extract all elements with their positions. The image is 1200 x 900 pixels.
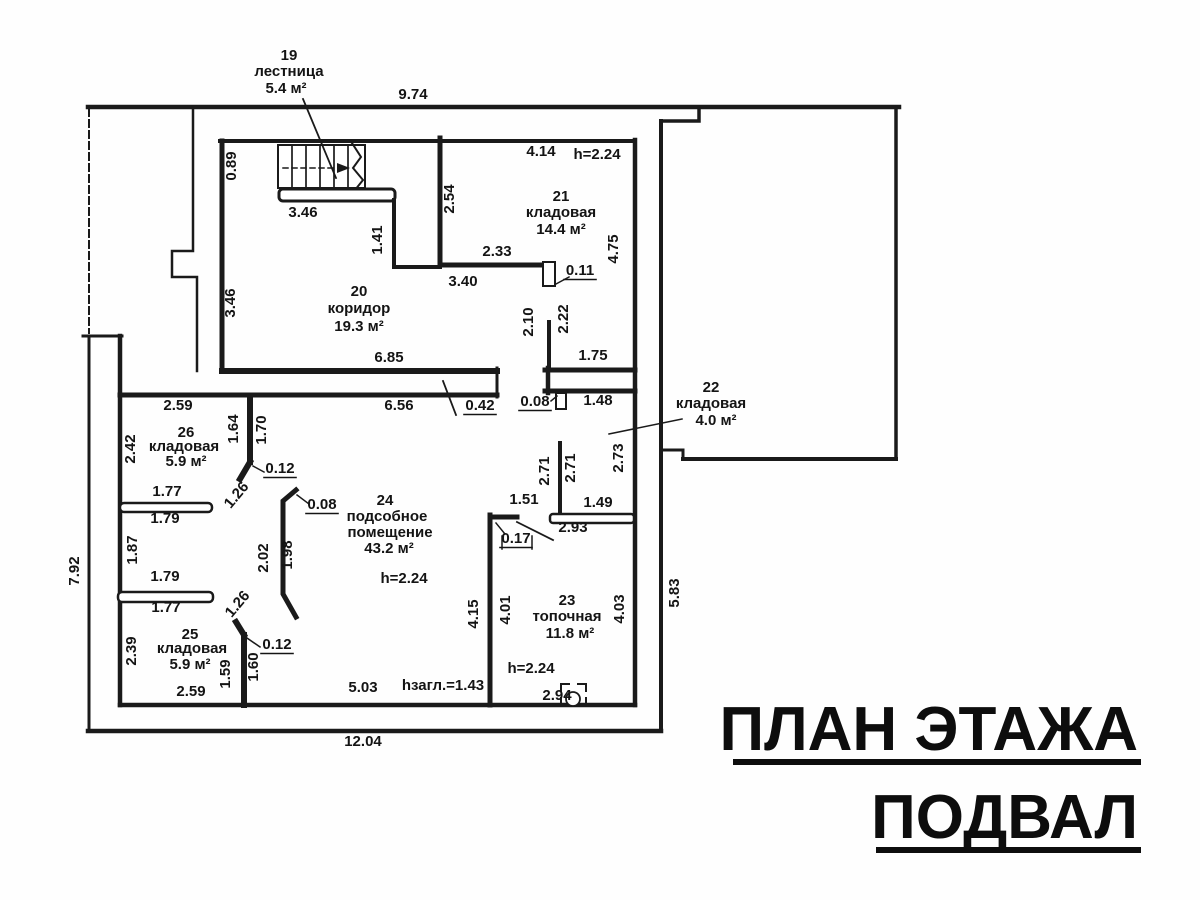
room-24-name-line1: подсобное bbox=[347, 508, 428, 525]
labels-layer: 19лестница5.4 м²20коридор19.3 м²21кладов… bbox=[66, 47, 746, 750]
dim-label: 1.98 bbox=[279, 540, 296, 569]
stairs-outline bbox=[278, 145, 365, 188]
title-block: ПЛАН ЭТАЖА ПОДВАЛ bbox=[720, 695, 1142, 852]
dim-label: 1.79 bbox=[150, 568, 179, 585]
leader-012-lower bbox=[247, 638, 260, 647]
dim-label: 6.56 bbox=[384, 397, 413, 414]
room-21-area: 14.4 м² bbox=[536, 221, 585, 238]
dim-label: 4.01 bbox=[497, 595, 514, 624]
room-26-area: 5.9 м² bbox=[165, 453, 206, 470]
dim-label: 5.03 bbox=[348, 679, 377, 696]
dim-label: 1.51 bbox=[509, 491, 538, 508]
room-24-area: 43.2 м² bbox=[364, 540, 413, 557]
dim-label: 0.08 bbox=[307, 496, 336, 513]
dim-label: 7.92 bbox=[66, 556, 83, 585]
dim-label: 2.59 bbox=[163, 397, 192, 414]
dim-label: 1.79 bbox=[150, 510, 179, 527]
dim-label: 1.75 bbox=[578, 347, 607, 364]
dim-label: 0.08 bbox=[520, 393, 549, 410]
wall-landing-niche bbox=[394, 200, 440, 267]
room-20-area: 19.3 м² bbox=[334, 318, 383, 335]
room-23-name: топочная bbox=[532, 608, 601, 625]
dim-label: 1.64 bbox=[225, 414, 242, 444]
dim-label: 2.10 bbox=[520, 307, 537, 336]
dim-label: 5.83 bbox=[666, 578, 683, 607]
dim-label: 2.73 bbox=[610, 443, 627, 472]
floor-plan-drawing: 19лестница5.4 м²20коридор19.3 м²21кладов… bbox=[0, 0, 1200, 900]
leader-012-upper bbox=[253, 466, 264, 472]
room-23-number: 23 bbox=[559, 592, 576, 609]
door-jamb-room22 bbox=[556, 393, 566, 409]
dim-label: 0.89 bbox=[223, 151, 240, 180]
dim-label: 4.75 bbox=[605, 234, 622, 263]
dim-label: 2.94 bbox=[542, 687, 572, 704]
dim-label: 2.22 bbox=[555, 304, 572, 333]
depth-annotation: hзагл.=1.43 bbox=[402, 677, 484, 694]
staircase bbox=[278, 99, 395, 201]
room-21-number: 21 bbox=[553, 188, 570, 205]
dim-label: 2.39 bbox=[123, 636, 140, 665]
dim-label: 1.26 bbox=[221, 478, 253, 511]
dim-label: 1.87 bbox=[124, 535, 141, 564]
dim-label: 1.77 bbox=[152, 483, 181, 500]
wall-room25-partition bbox=[236, 622, 244, 705]
dim-label: 2.42 bbox=[122, 434, 139, 463]
leader-042 bbox=[443, 381, 456, 415]
room-21-name: кладовая bbox=[526, 204, 596, 221]
dim-label: 1.26 bbox=[222, 587, 254, 620]
dim-label: 0.11 bbox=[566, 262, 594, 279]
dim-label: 2.71 bbox=[536, 456, 553, 485]
dim-label: 1.60 bbox=[245, 652, 262, 681]
dim-label: 6.85 bbox=[374, 349, 403, 366]
dim-label: 2.59 bbox=[176, 683, 205, 700]
dim-label: 1.41 bbox=[369, 225, 386, 254]
room-25-name: кладовая bbox=[157, 640, 227, 657]
wall-east-jog bbox=[661, 450, 683, 459]
room-23-area: 11.8 м² bbox=[546, 625, 595, 642]
dim-label: 9.74 bbox=[398, 86, 428, 103]
dim-label: 12.04 bbox=[344, 733, 382, 750]
dim-label: 1.59 bbox=[217, 659, 234, 688]
dim-label: 2.54 bbox=[441, 184, 458, 214]
room-20-number: 20 bbox=[351, 283, 368, 300]
dim-label: 1.70 bbox=[253, 415, 270, 444]
dim-label: 1.77 bbox=[151, 599, 180, 616]
dim-label: 3.46 bbox=[288, 204, 317, 221]
dim-label: 0.12 bbox=[265, 460, 294, 477]
dim-label: 0.42 bbox=[465, 397, 494, 414]
room-24-name-line2: помещение bbox=[347, 524, 432, 541]
dim-label: 1.48 bbox=[583, 392, 612, 409]
dim-label: 2.71 bbox=[562, 453, 579, 482]
room-24-height: h=2.24 bbox=[380, 570, 428, 587]
room-21-height: h=2.24 bbox=[573, 146, 621, 163]
stairs-landing bbox=[279, 189, 395, 201]
room22-label-leader bbox=[609, 419, 682, 434]
room-22-area: 4.0 м² bbox=[695, 412, 736, 429]
dim-label: 0.17 bbox=[501, 530, 530, 547]
room-22-number: 22 bbox=[703, 379, 720, 396]
dim-label: 3.46 bbox=[222, 288, 239, 317]
wall-west-thin bbox=[172, 110, 197, 371]
dim-label: 3.40 bbox=[448, 273, 477, 290]
room-19-name: лестница bbox=[254, 63, 324, 80]
room-20-name: коридор bbox=[328, 300, 391, 317]
dim-label: 4.15 bbox=[465, 599, 482, 628]
room-24-number: 24 bbox=[377, 492, 394, 509]
dim-label: 2.93 bbox=[558, 519, 587, 536]
room-19-area: 5.4 м² bbox=[265, 80, 306, 97]
title-line1: ПЛАН ЭТАЖА bbox=[720, 695, 1139, 764]
door-jamb-room21 bbox=[543, 262, 555, 286]
dim-label: 2.33 bbox=[482, 243, 511, 260]
floor-plan-page: 19лестница5.4 м²20коридор19.3 м²21кладов… bbox=[0, 0, 1200, 900]
room-22-name: кладовая bbox=[676, 395, 746, 412]
room-23-height: h=2.24 bbox=[507, 660, 555, 677]
dim-label: 1.49 bbox=[583, 494, 612, 511]
room-25-area: 5.9 м² bbox=[169, 656, 210, 673]
dim-label: 4.03 bbox=[611, 594, 628, 623]
room-19-number: 19 bbox=[281, 47, 298, 64]
dim-label: 0.12 bbox=[262, 636, 291, 653]
dim-label: 4.14 bbox=[526, 143, 556, 160]
title-line2: ПОДВАЛ bbox=[871, 783, 1138, 852]
dim-label: 2.02 bbox=[255, 543, 272, 572]
